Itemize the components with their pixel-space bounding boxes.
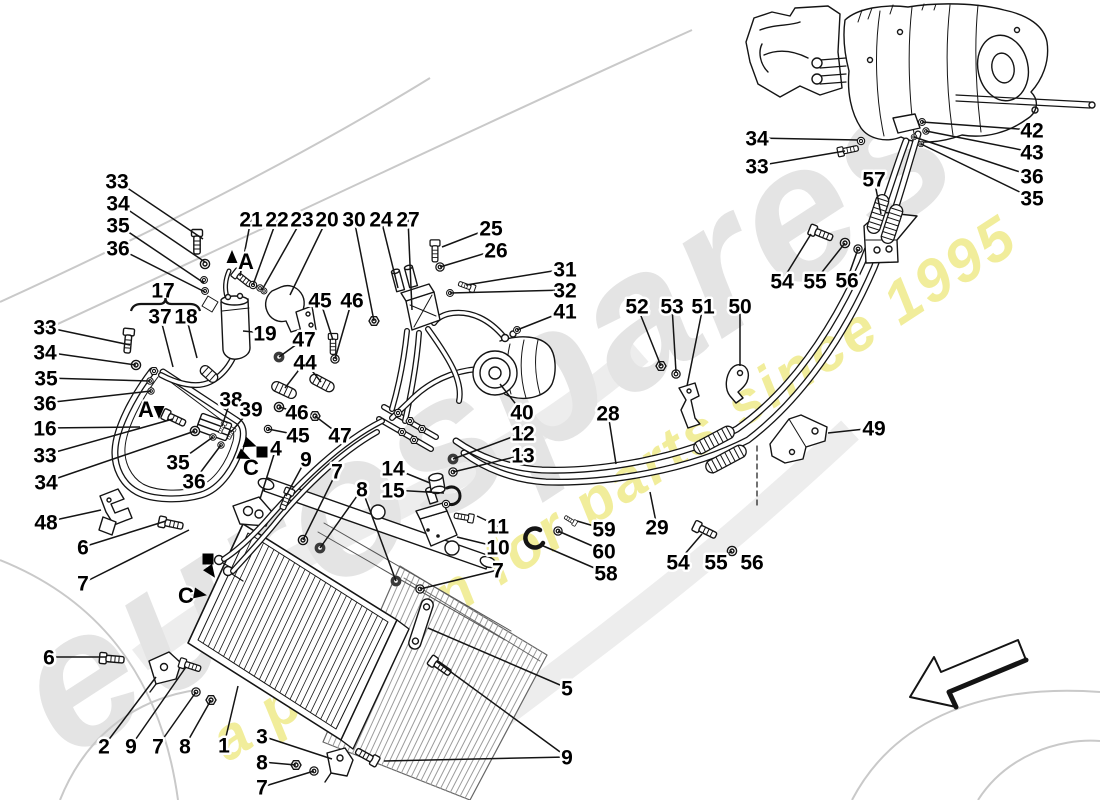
part-callout: 6 (77, 537, 89, 560)
part-callout: 32 (553, 280, 576, 303)
part-callout: 18 (174, 306, 198, 329)
part-callout: 54 (666, 552, 690, 575)
part-callout: 53 (660, 296, 683, 319)
part-callout: 19 (253, 323, 276, 346)
part-callout: 50 (728, 296, 751, 319)
part-callout: 33 (105, 171, 128, 194)
part-callout: 3 (256, 726, 268, 749)
part-callout: 36 (33, 393, 56, 416)
direction-arrow (910, 640, 1026, 707)
part-callout: 20 (315, 209, 338, 232)
part-callout: 56 (740, 552, 763, 575)
ac-system-exploded-diagram: eurospares a passion for parts since 199… (0, 0, 1100, 800)
part-callout: 24 (369, 209, 393, 232)
part-callout: 46 (285, 402, 308, 425)
part-callout: 40 (510, 402, 533, 425)
part-callout: 13 (511, 445, 534, 468)
part-callout: 56 (835, 270, 858, 293)
part-callout: 23 (290, 209, 313, 232)
mount-14 (428, 472, 445, 494)
part-callout: 44 (293, 352, 317, 375)
part-callout: 51 (691, 296, 715, 319)
part-callout: 14 (381, 458, 405, 481)
leader-line (46, 378, 150, 381)
part-callout: 12 (511, 423, 534, 446)
part-callout: 7 (492, 560, 504, 583)
part-callout: 33 (33, 445, 56, 468)
part-callout: 5 (561, 678, 573, 701)
part-callout: 9 (561, 747, 573, 770)
part-callout: 22 (265, 209, 288, 232)
part-callout: 39 (239, 399, 262, 422)
part-callout: 42 (1020, 120, 1043, 143)
part-callout: 9 (125, 736, 137, 759)
part-callout: 8 (256, 752, 268, 775)
part-callout: 45 (308, 290, 332, 313)
part-callout: 55 (704, 552, 728, 575)
part-callout: 34 (33, 342, 57, 365)
hvac-blower-box (844, 4, 1048, 142)
part-callout: 17 (151, 280, 174, 303)
part-callout: 8 (356, 479, 368, 502)
part-callout: 15 (381, 480, 405, 503)
part-callout: 16 (33, 418, 56, 441)
part-callout: 36 (182, 471, 205, 494)
part-callout: 54 (770, 271, 794, 294)
part-callout: 43 (1020, 142, 1043, 165)
parts-diagram-page: eurospares a passion for parts since 199… (0, 0, 1100, 800)
expansion-valve (391, 264, 440, 330)
part-callout: 58 (594, 563, 618, 586)
leader-line (45, 419, 173, 455)
leader-line (45, 427, 140, 428)
part-callout: 34 (34, 472, 58, 495)
leader-line (45, 327, 130, 345)
part-callout: 9 (300, 449, 312, 472)
ref-marker-letter: C (178, 583, 194, 608)
part-callout: 34 (106, 193, 130, 216)
part-callout: 60 (592, 541, 615, 564)
part-callout: 26 (484, 240, 507, 263)
part-callout: 35 (106, 215, 130, 238)
ref-marker-letter: A (138, 397, 154, 422)
part-callout: 35 (34, 368, 58, 391)
part-callout: 47 (328, 425, 351, 448)
part-callout: 47 (292, 329, 315, 352)
part-callout: 52 (625, 296, 648, 319)
part-callout: 57 (862, 169, 885, 192)
part-callout: 8 (179, 736, 191, 759)
part-callout: 41 (553, 301, 577, 324)
part-callout: 29 (645, 517, 668, 540)
ref-marker-letter: A (238, 249, 254, 274)
ref-marker-square (203, 554, 214, 565)
part-callout: 46 (340, 290, 363, 313)
part-callout: 10 (486, 537, 509, 560)
leader-line (262, 771, 314, 787)
part-callout: 4 (270, 438, 282, 461)
leader-line (45, 352, 136, 365)
part-callout: 35 (1020, 188, 1044, 211)
part-callout: 7 (77, 573, 89, 596)
part-callout: 33 (33, 317, 56, 340)
part-callout: 33 (745, 156, 768, 179)
receiver-drier (202, 294, 250, 360)
part-callout: 45 (286, 425, 310, 448)
part-callout: 27 (396, 209, 419, 232)
part-callout: 37 (148, 306, 171, 329)
part-callout: 7 (256, 777, 268, 800)
part-callout: 25 (479, 218, 503, 241)
part-callout: 11 (487, 516, 510, 539)
part-callout: 30 (342, 209, 365, 232)
part-callout: 21 (239, 209, 263, 232)
ref-marker-arrow (227, 250, 238, 263)
part-callout: 1 (218, 735, 230, 758)
part-callout: 36 (1020, 166, 1043, 189)
part-callout: 55 (803, 271, 827, 294)
part-callout: 36 (106, 238, 129, 261)
part-callout: 31 (553, 259, 577, 282)
part-callout: 7 (152, 736, 164, 759)
part-callout: 2 (98, 736, 110, 759)
part-callout: 48 (34, 512, 58, 535)
ref-marker-square (257, 447, 268, 458)
part-callout: 6 (43, 647, 55, 670)
part-callout: 49 (862, 418, 885, 441)
part-callout: 34 (745, 128, 769, 151)
part-callout: 28 (596, 403, 620, 426)
part-callout: 7 (331, 461, 343, 484)
part-callout: 59 (592, 519, 615, 542)
